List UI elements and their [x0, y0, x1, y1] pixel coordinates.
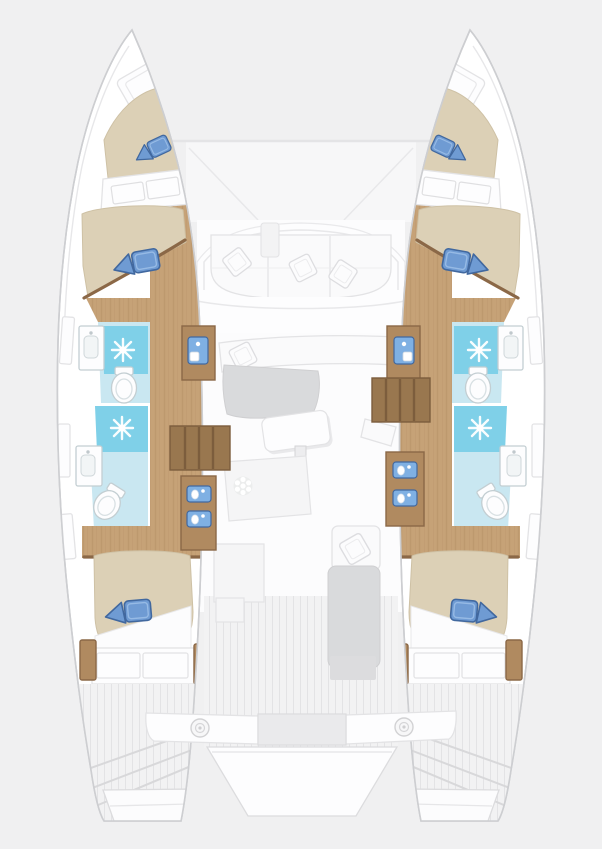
foredeck — [150, 141, 452, 222]
port-vanity — [181, 476, 216, 550]
table-pedestal — [295, 446, 306, 457]
forward-walkway — [197, 297, 405, 333]
nav-seat — [332, 526, 380, 570]
port-companionway-steps — [170, 426, 230, 470]
winch-icon — [395, 718, 413, 736]
galley-counter — [224, 456, 311, 521]
cockpit-table — [261, 223, 279, 257]
port-console — [182, 326, 215, 380]
starboard-vanity — [386, 452, 424, 526]
winch-icon — [191, 719, 209, 737]
forward-cockpit — [197, 223, 405, 299]
chaise-cushion — [223, 365, 319, 418]
catamaran-floorplan — [0, 0, 602, 849]
floorplan-canvas — [0, 0, 602, 849]
starboard-companionway-steps — [372, 378, 430, 422]
starboard-console — [387, 326, 420, 380]
side-bench — [328, 566, 380, 668]
engine-hatch — [330, 656, 376, 680]
stern-bench — [146, 711, 456, 745]
